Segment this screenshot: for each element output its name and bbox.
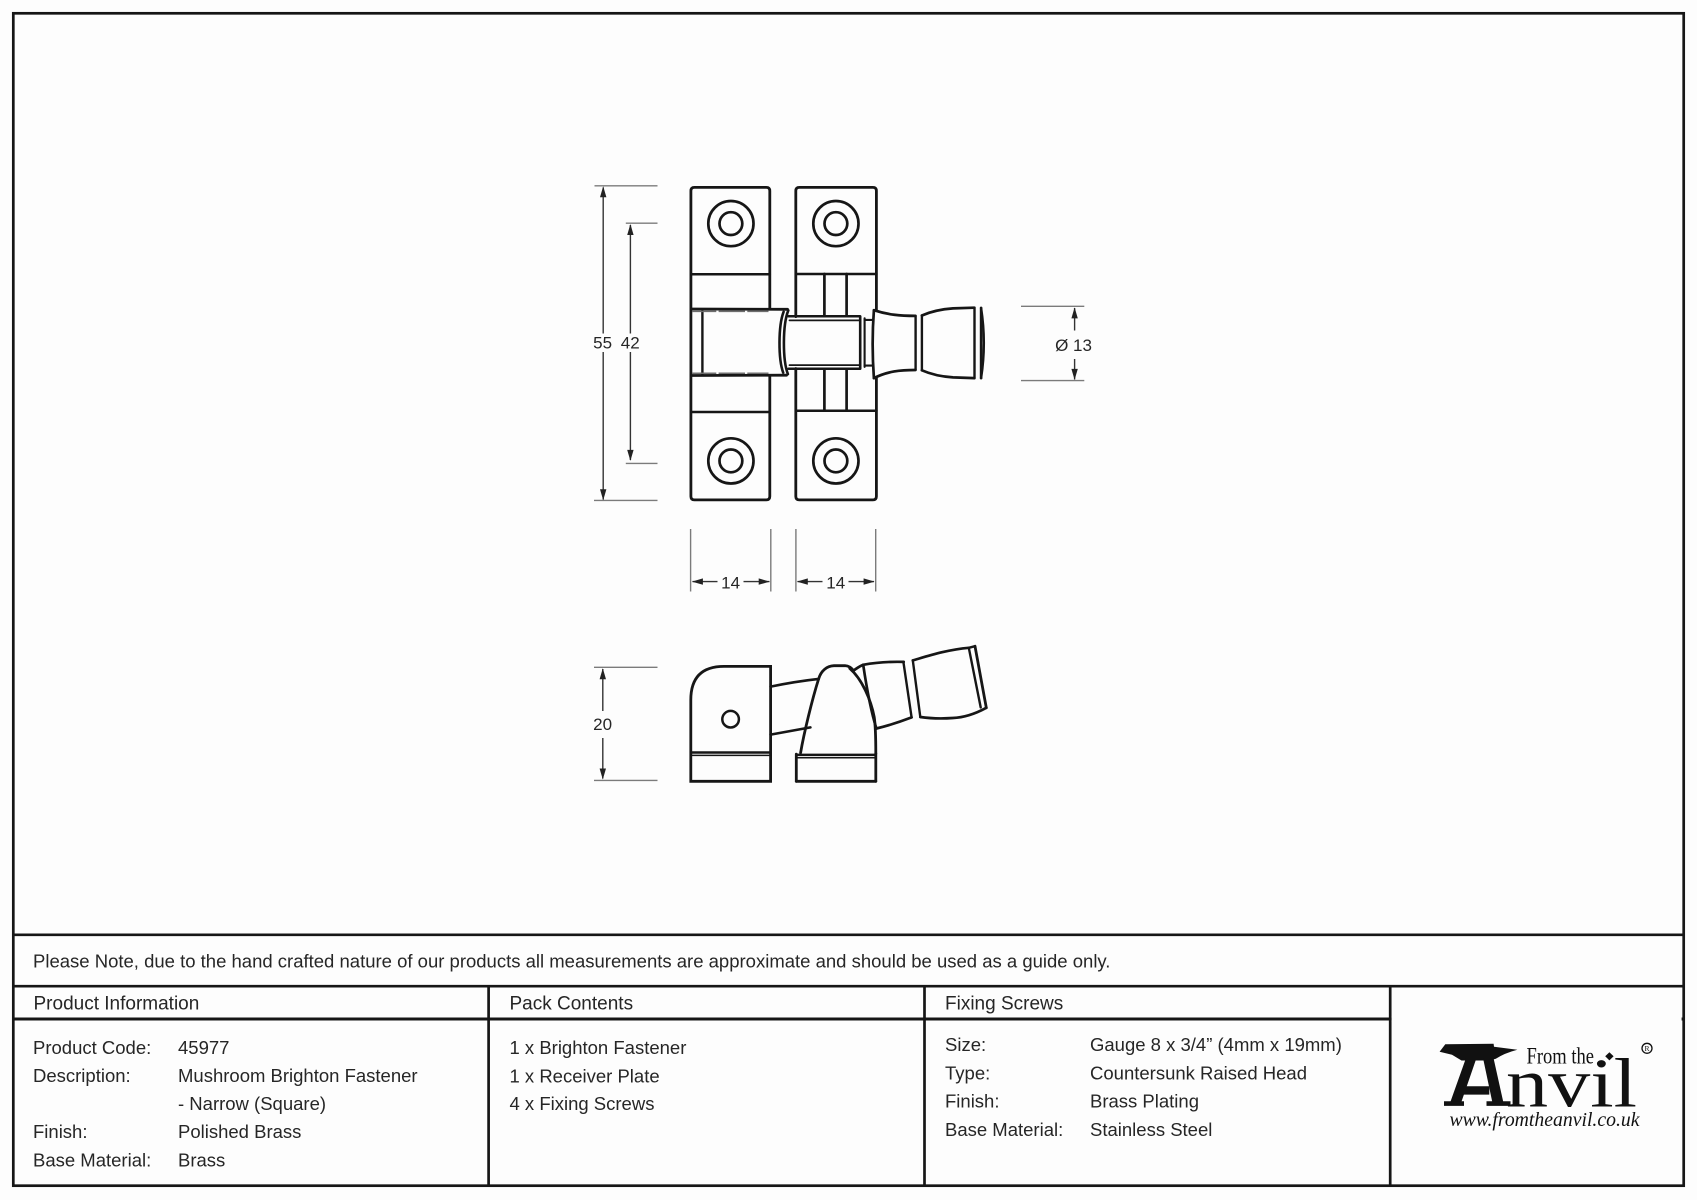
svg-text:Gauge 8 x 3/4” (4mm x 19mm): Gauge 8 x 3/4” (4mm x 19mm) — [1090, 1034, 1342, 1055]
svg-text:Base Material:: Base Material: — [945, 1119, 1063, 1140]
svg-text:4 x Fixing Screws: 4 x Fixing Screws — [510, 1093, 655, 1114]
svg-text:Finish:: Finish: — [945, 1091, 1000, 1112]
svg-text:Please Note, due to the hand c: Please Note, due to the hand crafted nat… — [33, 951, 1110, 972]
svg-text:R: R — [1644, 1044, 1649, 1053]
svg-text:42: 42 — [621, 334, 640, 353]
svg-text:- Narrow (Square): - Narrow (Square) — [178, 1093, 326, 1114]
svg-text:45977: 45977 — [178, 1037, 229, 1058]
svg-text:Countersunk Raised Head: Countersunk Raised Head — [1090, 1062, 1307, 1083]
svg-text:Product Information: Product Information — [34, 994, 200, 1015]
svg-text:www.fromtheanvil.co.uk: www.fromtheanvil.co.uk — [1450, 1109, 1641, 1131]
svg-text:55: 55 — [593, 334, 612, 353]
svg-text:Pack Contents: Pack Contents — [510, 994, 634, 1015]
svg-text:Size:: Size: — [945, 1034, 986, 1055]
svg-text:Polished Brass: Polished Brass — [178, 1121, 301, 1142]
svg-text:Finish:: Finish: — [33, 1121, 88, 1142]
svg-text:1 x Receiver Plate: 1 x Receiver Plate — [510, 1066, 660, 1087]
svg-text:14: 14 — [826, 574, 845, 593]
svg-text:Product Code:: Product Code: — [33, 1037, 151, 1058]
svg-text:Fixing Screws: Fixing Screws — [945, 994, 1063, 1015]
svg-text:Type:: Type: — [945, 1062, 990, 1083]
svg-text:20: 20 — [593, 715, 612, 734]
svg-text:Stainless Steel: Stainless Steel — [1090, 1119, 1212, 1140]
svg-text:Ø 13: Ø 13 — [1055, 336, 1092, 355]
svg-text:Mushroom Brighton Fastener: Mushroom Brighton Fastener — [178, 1065, 418, 1086]
svg-text:Brass Plating: Brass Plating — [1090, 1091, 1199, 1112]
svg-text:1 x Brighton Fastener: 1 x Brighton Fastener — [510, 1037, 687, 1058]
svg-text:Description:: Description: — [33, 1065, 131, 1086]
svg-text:Brass: Brass — [178, 1150, 225, 1171]
svg-text:14: 14 — [721, 574, 740, 593]
svg-text:Base Material:: Base Material: — [33, 1150, 151, 1171]
